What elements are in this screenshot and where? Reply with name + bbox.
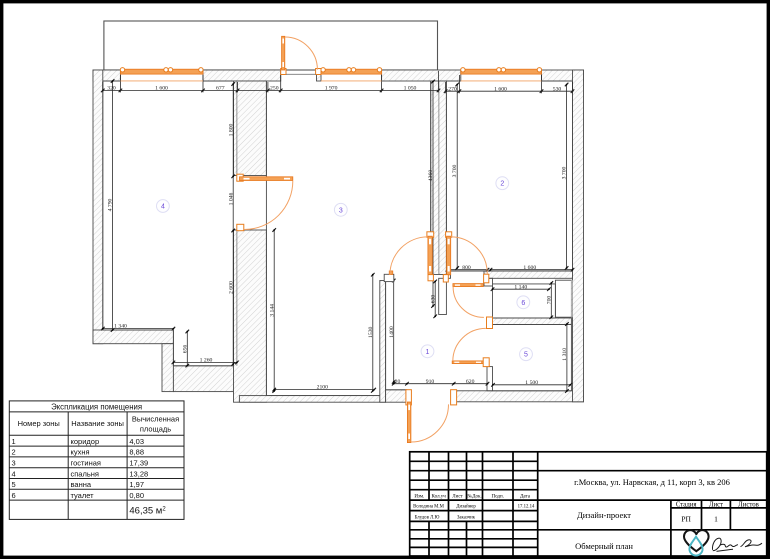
- svg-text:6: 6: [12, 491, 16, 500]
- svg-text:13,28: 13,28: [129, 469, 148, 478]
- svg-text:Дизайн-проект: Дизайн-проект: [577, 510, 631, 520]
- svg-text:17,39: 17,39: [129, 459, 148, 468]
- svg-text:площадь: площадь: [140, 424, 171, 433]
- svg-text:3 700: 3 700: [562, 166, 568, 179]
- svg-text:гостиная: гостиная: [71, 459, 102, 468]
- svg-text:Обмерный план: Обмерный план: [575, 541, 633, 551]
- svg-text:0,80: 0,80: [129, 491, 144, 500]
- svg-text:Название зоны: Название зоны: [71, 419, 124, 428]
- svg-text:Володина М.М: Володина М.М: [413, 505, 445, 510]
- svg-text:1 140: 1 140: [514, 284, 527, 290]
- svg-text:5: 5: [12, 480, 16, 489]
- svg-text:910: 910: [426, 379, 435, 385]
- svg-text:1 600: 1 600: [523, 265, 536, 271]
- svg-text:4360: 4360: [428, 170, 434, 182]
- svg-text:Блудов Л.Ю: Блудов Л.Ю: [415, 515, 440, 520]
- svg-text:Вычисленная: Вычисленная: [132, 415, 179, 424]
- svg-text:2100: 2100: [317, 385, 329, 391]
- svg-text:800: 800: [462, 265, 471, 271]
- svg-text:Кол.уч: Кол.уч: [432, 494, 447, 499]
- svg-text:4: 4: [161, 204, 165, 211]
- svg-text:677: 677: [216, 86, 225, 92]
- svg-text:Номер зоны: Номер зоны: [18, 419, 60, 428]
- svg-text:1 046: 1 046: [228, 192, 234, 205]
- svg-text:630: 630: [430, 295, 436, 304]
- svg-text:17.12.14: 17.12.14: [518, 505, 535, 510]
- svg-text:1 050: 1 050: [404, 86, 417, 92]
- svg-text:ванна: ванна: [71, 480, 92, 489]
- svg-text:1 970: 1 970: [325, 86, 338, 92]
- svg-text:1 260: 1 260: [200, 358, 213, 364]
- svg-text:1: 1: [12, 437, 16, 446]
- svg-text:530: 530: [553, 86, 562, 92]
- svg-text:4: 4: [12, 469, 16, 478]
- svg-text:1,97: 1,97: [129, 480, 144, 489]
- svg-text:250: 250: [270, 86, 279, 92]
- svg-text:6: 6: [521, 300, 525, 307]
- svg-text:5: 5: [524, 352, 528, 359]
- svg-text:2: 2: [500, 181, 504, 188]
- svg-text:46,35 м2: 46,35 м2: [129, 506, 166, 517]
- svg-text:3: 3: [12, 459, 16, 468]
- svg-text:1 310: 1 310: [562, 348, 568, 361]
- svg-text:коридор: коридор: [71, 437, 100, 446]
- svg-text:Листов: Листов: [738, 502, 759, 509]
- svg-text:Экспликация помещения: Экспликация помещения: [51, 402, 142, 411]
- svg-text:туалет: туалет: [71, 491, 95, 500]
- svg-text:4 790: 4 790: [108, 198, 114, 211]
- svg-text:3 144: 3 144: [269, 304, 275, 317]
- svg-text:1 340: 1 340: [114, 324, 127, 330]
- svg-text:1: 1: [426, 349, 430, 356]
- svg-text:Изм.: Изм.: [414, 494, 424, 499]
- svg-text:№Док.: №Док.: [467, 493, 481, 499]
- svg-text:Заказчик: Заказчик: [457, 515, 476, 520]
- svg-text:Лист: Лист: [709, 502, 723, 509]
- svg-text:1 600: 1 600: [155, 86, 168, 92]
- svg-text:1400: 1400: [389, 326, 395, 338]
- svg-text:656: 656: [182, 345, 188, 354]
- svg-text:3: 3: [339, 207, 343, 214]
- svg-text:20: 20: [395, 379, 401, 385]
- svg-text:1 800: 1 800: [228, 123, 234, 136]
- svg-text:320: 320: [107, 86, 116, 92]
- svg-text:1: 1: [714, 515, 718, 524]
- svg-text:1 500: 1 500: [525, 380, 538, 386]
- svg-text:кухня: кухня: [71, 448, 90, 457]
- svg-text:Стадия: Стадия: [676, 502, 697, 509]
- svg-text:620: 620: [466, 379, 475, 385]
- svg-text:Дата: Дата: [520, 494, 531, 499]
- svg-text:1530: 1530: [368, 326, 374, 338]
- svg-text:700: 700: [546, 296, 552, 305]
- svg-text:4,03: 4,03: [129, 437, 144, 446]
- svg-text:РП: РП: [681, 515, 691, 524]
- svg-text:Лист: Лист: [452, 494, 463, 499]
- svg-text:2 600: 2 600: [228, 281, 234, 294]
- svg-text:2: 2: [12, 448, 16, 457]
- svg-text:1 600: 1 600: [494, 86, 507, 92]
- svg-text:270: 270: [448, 86, 457, 92]
- svg-text:3 700: 3 700: [452, 164, 458, 177]
- svg-text:8,88: 8,88: [129, 448, 144, 457]
- svg-text:г.Москва, ул. Нарвская, д 11,: г.Москва, ул. Нарвская, д 11, корп 3, кв…: [574, 477, 730, 487]
- svg-text:спальня: спальня: [71, 469, 99, 478]
- svg-text:Подп.: Подп.: [491, 494, 503, 499]
- svg-text:Дизайнер: Дизайнер: [456, 505, 476, 510]
